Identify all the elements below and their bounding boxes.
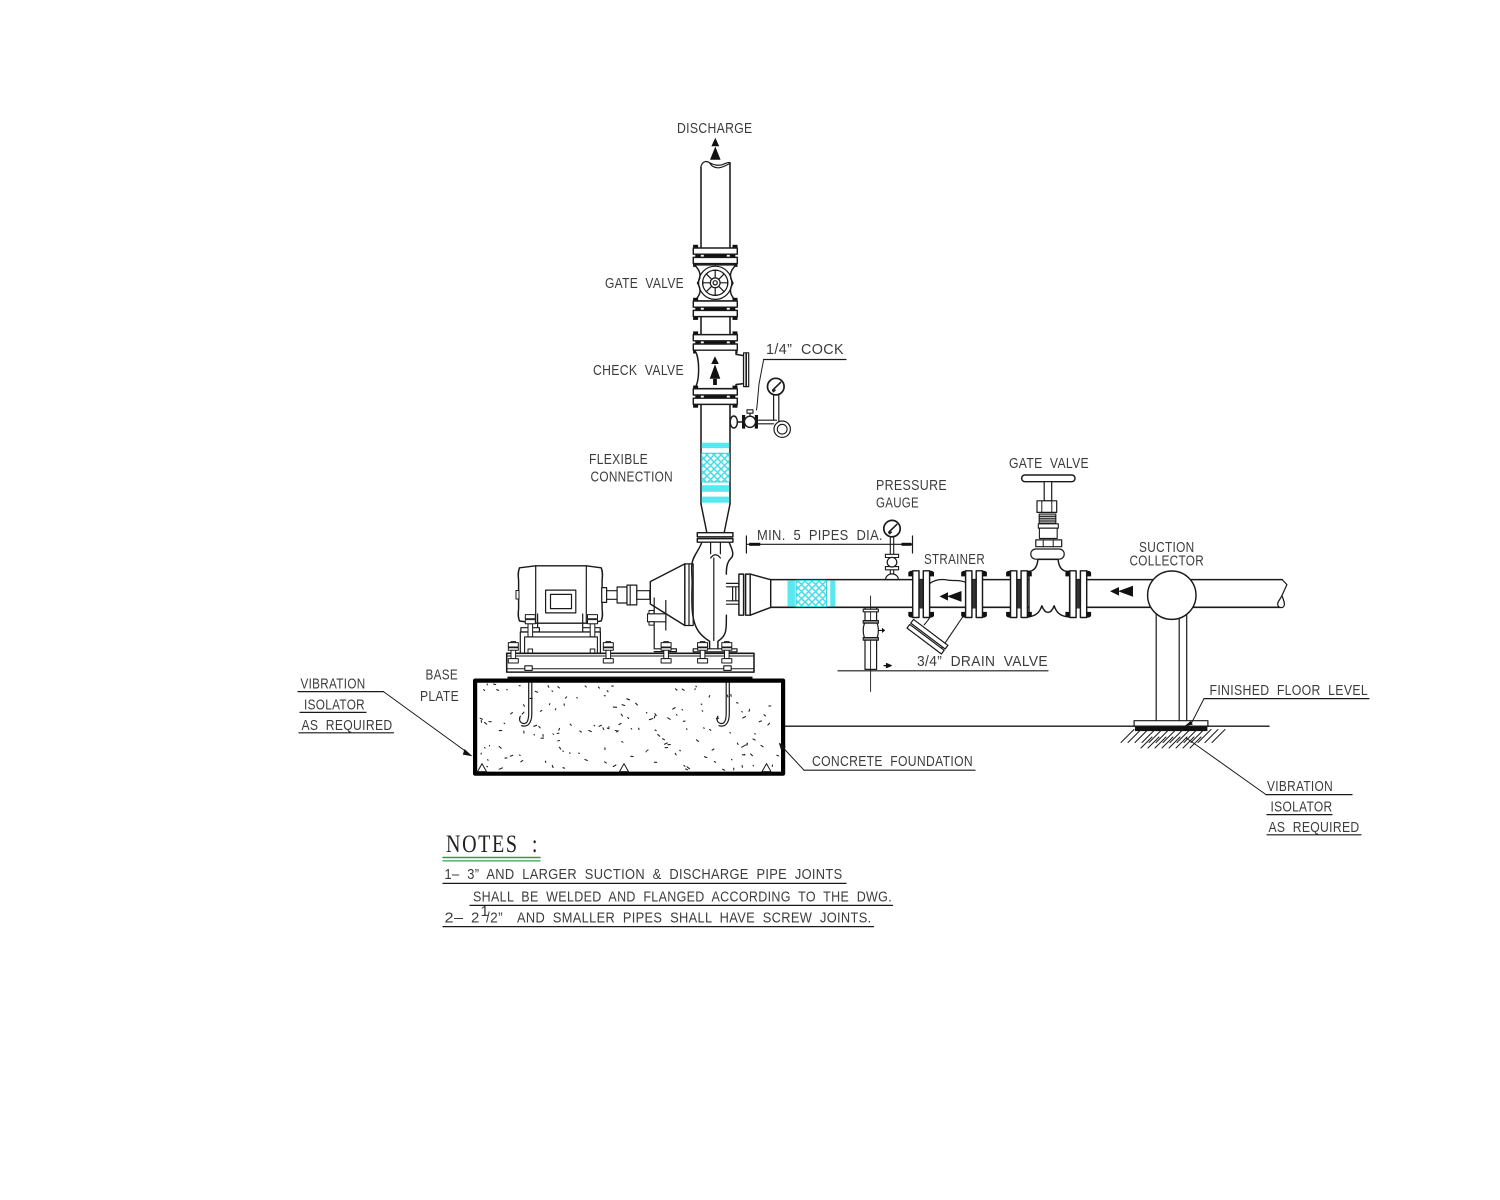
svg-text:COLLECTOR: COLLECTOR bbox=[1130, 553, 1205, 570]
svg-text:VIBRATION: VIBRATION bbox=[301, 676, 366, 693]
svg-text:STRAINER: STRAINER bbox=[924, 551, 985, 568]
svg-text:ISOLATOR: ISOLATOR bbox=[304, 697, 365, 714]
svg-text:AS REQUIRED: AS REQUIRED bbox=[302, 717, 393, 734]
svg-text:3/4” DRAIN VALVE: 3/4” DRAIN VALVE bbox=[917, 653, 1048, 670]
svg-text:2–: 2– bbox=[445, 910, 464, 927]
svg-text:GATE VALVE: GATE VALVE bbox=[605, 275, 684, 292]
svg-text:/2”: /2” bbox=[486, 910, 503, 927]
svg-text:CONNECTION: CONNECTION bbox=[591, 469, 674, 486]
svg-text:1– 3” AND LARGER SUCTION: 1– 3” AND LARGER SUCTION & DISCHARGE PIP… bbox=[445, 866, 843, 883]
svg-text:SHALL BE WELDED AND FLANGE: SHALL BE WELDED AND FLANGED ACCORDING TO… bbox=[473, 889, 892, 906]
svg-text:GAUGE: GAUGE bbox=[876, 495, 919, 512]
svg-text:MIN. 5 PIPES DIA.: MIN. 5 PIPES DIA. bbox=[757, 527, 883, 544]
svg-text:PRESSURE: PRESSURE bbox=[876, 477, 947, 494]
svg-text:1/4” COCK: 1/4” COCK bbox=[766, 341, 844, 358]
svg-text:VIBRATION: VIBRATION bbox=[1267, 778, 1333, 795]
svg-text:CHECK VALVE: CHECK VALVE bbox=[593, 362, 684, 379]
svg-text:FINISHED FLOOR LEVEL: FINISHED FLOOR LEVEL bbox=[1210, 682, 1369, 699]
svg-text:AS REQUIRED: AS REQUIRED bbox=[1269, 819, 1360, 836]
svg-text:2: 2 bbox=[471, 910, 480, 927]
svg-text:NOTES :: NOTES : bbox=[446, 831, 539, 858]
svg-text:DISCHARGE: DISCHARGE bbox=[677, 120, 753, 137]
svg-text:GATE VALVE: GATE VALVE bbox=[1009, 455, 1089, 472]
svg-text:FLEXIBLE: FLEXIBLE bbox=[589, 451, 648, 468]
svg-text:ISOLATOR: ISOLATOR bbox=[1271, 799, 1333, 816]
svg-text:AND SMALLER PIPES SHALL HA: AND SMALLER PIPES SHALL HAVE SCREW JOINT… bbox=[517, 910, 872, 927]
svg-text:BASE: BASE bbox=[426, 667, 459, 684]
svg-text:CONCRETE FOUNDATION: CONCRETE FOUNDATION bbox=[812, 753, 973, 770]
svg-text:PLATE: PLATE bbox=[420, 688, 459, 705]
